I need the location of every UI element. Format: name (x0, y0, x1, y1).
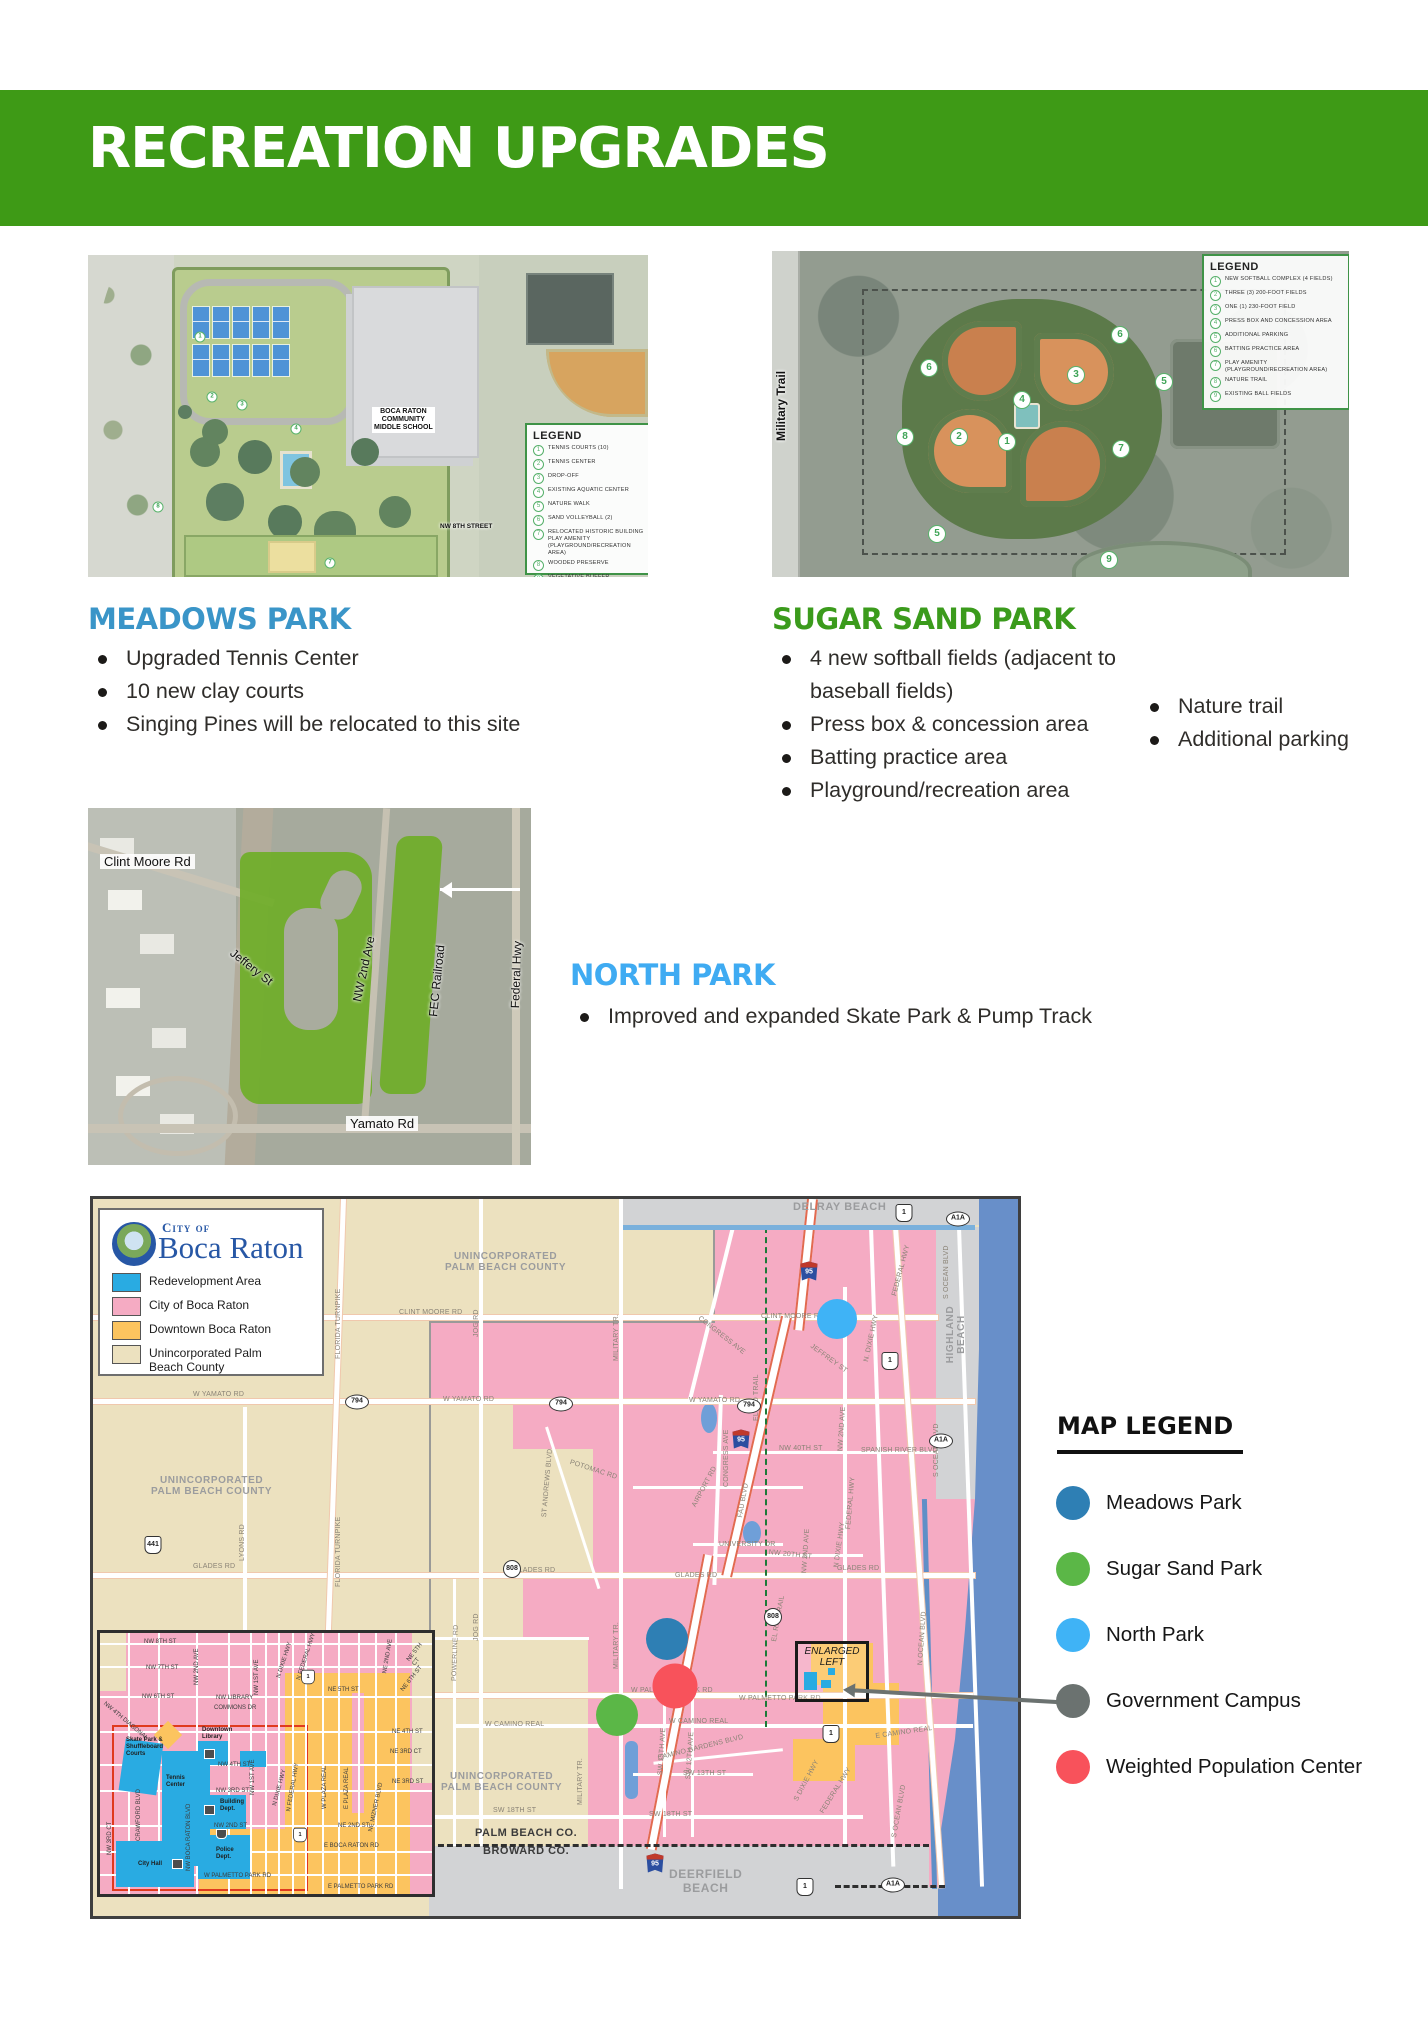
bullet-item: 4 new softball fields (adjacent to baseb… (772, 642, 1162, 708)
map-legend-label: Sugar Sand Park (1106, 1557, 1262, 1581)
map-legend-item: Sugar Sand Park (1056, 1552, 1262, 1586)
tennis-court (232, 306, 250, 339)
road (619, 1199, 623, 1889)
legend-item-label: BATTING PRACTICE AREA (1225, 346, 1299, 353)
legend-item-label: EXISTING BALL FIELDS (1225, 391, 1291, 398)
bullet-item: Improved and expanded Skate Park & Pump … (570, 1000, 1270, 1033)
meadows-image-legend: LEGEND 1TENNIS COURTS (10)2TENNIS CENTER… (525, 423, 648, 575)
north-park-marker (817, 1299, 857, 1339)
north-heading: NORTH PARK (570, 958, 775, 992)
inset-label: NW 4TH ST (218, 1762, 250, 1769)
north-park-aerial: Clint Moore RdJeffery StNW 2nd AveFEC Ra… (88, 808, 531, 1165)
inset-label: Tennis Center (166, 1775, 185, 1789)
route-shield: 794 (345, 1395, 369, 1410)
bullet-item: 10 new clay courts (88, 675, 648, 708)
legend-item-number: 3 (533, 473, 544, 484)
map-road-label: JOG RD (473, 1309, 480, 1337)
inset-label: NW 6TH ST (142, 1694, 174, 1701)
legend-item: 5ADDITIONAL PARKING (1210, 332, 1342, 343)
legend-item-label: TENNIS COURTS (10) (548, 445, 609, 452)
numbered-badge: 1 (195, 332, 206, 343)
legend-item-number: 7 (1210, 360, 1221, 371)
legend-item-label: PLAY AMENITY (PLAYGROUND/RECREATION AREA… (1225, 360, 1342, 374)
map-road-label: GLADES RD (837, 1565, 879, 1572)
military-trail-label: Military Trail (774, 371, 788, 441)
route-shield: 441 (145, 1536, 162, 1554)
legend-item-number: 6 (533, 515, 544, 526)
numbered-badge: 8 (153, 502, 164, 513)
map-road-label: CONGRESS AVE (723, 1429, 730, 1487)
sugar-sand-park-legend-dot (1056, 1552, 1090, 1586)
numbered-badge: 8 (896, 428, 914, 446)
map-area-label: UNINCORPORATED PALM BEACH COUNTY (151, 1475, 272, 1497)
road (479, 1199, 483, 1846)
map-road-label: W YAMATO RD (443, 1396, 494, 1403)
bullet-item: Singing Pines will be relocated to this … (88, 708, 648, 741)
legend-item-label: THREE (3) 200-FOOT FIELDS (1225, 290, 1307, 297)
route-shield: A1A (929, 1434, 953, 1449)
inset-label: NW BOCA RATON BLVD (186, 1804, 193, 1871)
softball-field-nw (942, 321, 1022, 401)
inset-label: E PALMETTO PARK RD (328, 1884, 393, 1891)
legend-item: 6BATTING PRACTICE AREA (1210, 346, 1342, 357)
numbered-badge: 2 (950, 428, 968, 446)
map-road-label: S OCEAN BLVD (933, 1423, 940, 1477)
city-hall-icon (172, 1859, 183, 1869)
weighted-population-marker (653, 1664, 698, 1709)
map-area-label: PALM BEACH CO. (475, 1827, 577, 1839)
route-shield: 95 (733, 1430, 750, 1449)
legend-item-label: SAND VOLLEYBALL (2) (548, 515, 613, 522)
legend-item: 8WOODED PRESERVE (533, 560, 648, 571)
legend-item-number: 1 (533, 445, 544, 456)
legend-item-number: 9 (1210, 391, 1221, 402)
map-area-label: BROWARD CO. (483, 1845, 569, 1857)
weighted-population-center-legend-dot (1056, 1750, 1090, 1784)
map-road-label: LYONS RD (239, 1524, 246, 1561)
map-road-label: SW 13TH ST (683, 1770, 726, 1777)
route-shield: 95 (801, 1262, 818, 1281)
map-area-label: HIGHLAND BEACH (945, 1298, 967, 1371)
tree-canopy (178, 405, 192, 419)
route-shield: 1 (896, 1204, 913, 1222)
legend-item-number: 2 (533, 459, 544, 470)
enlarged-left-label: ENLARGED LEFT (798, 1646, 866, 1668)
route-shield: 808 (764, 1608, 782, 1626)
north-park-legend-dot (1056, 1618, 1090, 1652)
tennis-court (192, 344, 210, 377)
aerial-road-label: Yamato Rd (346, 1116, 418, 1131)
tennis-court (212, 306, 230, 339)
route-shield: 1 (301, 1670, 315, 1684)
header-band: RECREATION UPGRADES (0, 90, 1428, 226)
numbered-badge: 6 (920, 359, 938, 377)
sugar-image-legend: LEGEND 1NEW SOFTBALL COMPLEX (4 FIELDS)2… (1202, 254, 1349, 410)
page-title: RECREATION UPGRADES (88, 116, 829, 181)
sugar-bullets-left: 4 new softball fields (adjacent to baseb… (772, 642, 1162, 807)
numbered-badge: 7 (1112, 440, 1130, 458)
legend-title: LEGEND (1210, 261, 1342, 273)
legend-item-number: 3 (1210, 304, 1221, 315)
map-road-label: GLADES RD (675, 1572, 717, 1579)
city-seal-icon (112, 1222, 156, 1266)
map-road-label: W YAMATO RD (689, 1397, 740, 1404)
legend-item-number: 8 (533, 560, 544, 571)
north-bullets: Improved and expanded Skate Park & Pump … (570, 1000, 1270, 1033)
route-shield: 808 (503, 1560, 521, 1578)
inset-label: City Hall (138, 1861, 162, 1868)
legend-item: 5NATURE WALK (533, 501, 648, 512)
bullet-item: Playground/recreation area (772, 774, 1162, 807)
map-legend-label: Weighted Population Center (1106, 1755, 1362, 1779)
legend-item-number: 2 (1210, 290, 1221, 301)
road (623, 1225, 975, 1230)
inset-road (100, 1825, 432, 1827)
landuse-label: City of Boca Raton (149, 1297, 249, 1312)
inset-label: E BOCA RATON RD (324, 1843, 379, 1850)
white-arrow (440, 888, 520, 891)
enlarged-left-box: ENLARGED LEFT (795, 1641, 869, 1702)
map-area-label: DEERFIELD BEACH (669, 1867, 742, 1895)
bullet-item: Batting practice area (772, 741, 1162, 774)
route-shield: A1A (946, 1212, 970, 1227)
inset-label: E PLAZA REAL (344, 1767, 351, 1809)
map-road-label: EL RIO TRAIL (753, 1374, 760, 1421)
map-legend-item: North Park (1056, 1618, 1204, 1652)
map-road-label: SPANISH RIVER BLVD (861, 1447, 938, 1454)
map-road-label: MILITARY TR. (577, 1758, 584, 1805)
route-shield: 95 (647, 1854, 664, 1873)
legend-item: 4PRESS BOX AND CONCESSION AREA (1210, 318, 1342, 329)
route-shield: 794 (737, 1399, 761, 1414)
inset-label: COMMONS DR (214, 1705, 256, 1712)
legend-item-number: 4 (1210, 318, 1221, 329)
legend-item-number: 5 (1210, 332, 1221, 343)
softball-field-sw (928, 409, 1012, 493)
meadows-heading: MEADOWS PARK (88, 602, 351, 636)
residential-cutout (284, 908, 338, 1030)
tennis-court (272, 344, 290, 377)
landuse-legend-item: Unincorporated Palm Beach County (112, 1345, 322, 1374)
legend-item-label: VEGETATIVE BUFFER (548, 574, 610, 577)
legend-item-label: NEW SOFTBALL COMPLEX (4 FIELDS) (1225, 276, 1333, 283)
legend-item: 2THREE (3) 200-FOOT FIELDS (1210, 290, 1342, 301)
sugar-bullets-right: Nature trailAdditional parking (1140, 690, 1360, 756)
sugar-sand-marker (596, 1694, 638, 1736)
school-courts (526, 273, 614, 345)
numbered-badge: 1 (998, 433, 1016, 451)
road (765, 1227, 769, 1727)
route-shield: A1A (881, 1878, 905, 1893)
school-label: BOCA RATON COMMUNITY MIDDLE SCHOOL (372, 407, 435, 433)
map-area-label: DELRAY BEACH (793, 1201, 886, 1213)
numbered-badge: 7 (325, 558, 336, 569)
tennis-court (272, 306, 290, 339)
map-road-label: SW 18TH ST (649, 1811, 692, 1818)
map-legend-underline (1057, 1450, 1243, 1454)
legend-item-label: TENNIS CENTER (548, 459, 596, 466)
inset-road (100, 1731, 432, 1733)
map-road-label: SW 18TH ST (493, 1807, 536, 1814)
legend-item-label: RELOCATED HISTORIC BUILDING PLAY AMENITY… (548, 529, 648, 557)
legend-item: 8NATURE TRAIL (1210, 377, 1342, 388)
tennis-court (212, 344, 230, 377)
inset-label: W PALMETTO PARK RD (204, 1873, 271, 1880)
legend-item-label: PRESS BOX AND CONCESSION AREA (1225, 318, 1332, 325)
legend-item: 1TENNIS COURTS (10) (533, 445, 648, 456)
inset-label: CRAWFORD BLVD (136, 1789, 143, 1841)
legend-item-label: EXISTING AQUATIC CENTER (548, 487, 629, 494)
legend-item-number: 6 (1210, 346, 1221, 357)
numbered-badge: 6 (1111, 326, 1129, 344)
aquatic-center-pool (280, 451, 312, 489)
inset-label: NE 5TH ST (328, 1687, 359, 1694)
map-road-label: W YAMATO RD (193, 1391, 244, 1398)
map-road-label: MILITARY TR. (613, 1314, 620, 1361)
legend-item: 2TENNIS CENTER (533, 459, 648, 470)
landuse-swatch (112, 1297, 141, 1316)
page: RECREATION UPGRADES BOCA RATON COMMUNITY… (0, 0, 1428, 2028)
meadows-bullets: Upgraded Tennis Center10 new clay courts… (88, 642, 648, 741)
legend-item-number: 1 (1210, 276, 1221, 287)
legend-item: 7PLAY AMENITY (PLAYGROUND/RECREATION ARE… (1210, 360, 1342, 374)
logo-city-name: Boca Raton (158, 1230, 304, 1266)
route-shield: 794 (549, 1397, 573, 1412)
route-shield: 1 (293, 1828, 307, 1842)
landuse-legend-item: Redevelopment Area (112, 1273, 322, 1292)
legend-item-label: NATURE WALK (548, 501, 590, 508)
library-icon (204, 1749, 215, 1759)
landuse-label: Redevelopment Area (149, 1273, 261, 1288)
map-road-label: W CAMINO REAL (669, 1718, 728, 1725)
map-road-label: JOG RD (473, 1613, 480, 1641)
legend-item-label: NATURE TRAIL (1225, 377, 1267, 384)
numbered-badge: 2 (207, 392, 218, 403)
legend-item: 1NEW SOFTBALL COMPLEX (4 FIELDS) (1210, 276, 1342, 287)
route-shield: 1 (882, 1352, 899, 1370)
inset-label: NE 4TH ST (392, 1729, 423, 1736)
interchange-loop (118, 1076, 238, 1156)
sugar-sand-aerial: Military Trail LEGEND 1NEW SOFTBALL COMP… (772, 251, 1349, 577)
yamato-road (88, 1124, 531, 1133)
map-road-label: MILITARY TR. (613, 1622, 620, 1669)
legend-title: LEGEND (533, 430, 648, 442)
inset-label: NW LIBRARY (216, 1695, 253, 1702)
aerial-road-label: Clint Moore Rd (100, 854, 195, 869)
bullet-item: Upgraded Tennis Center (88, 642, 648, 675)
legend-item-number: 9 (533, 574, 544, 577)
map-area-label: UNINCORPORATED PALM BEACH COUNTY (445, 1251, 566, 1273)
bullet-item: Nature trail (1140, 690, 1360, 723)
landuse-label: Unincorporated Palm Beach County (149, 1345, 262, 1374)
map-logo-legend: City of Boca Raton Redevelopment AreaCit… (98, 1208, 324, 1376)
landuse-legend-item: Downtown Boca Raton (112, 1321, 322, 1340)
inset-label: NW 1ST AVE (254, 1660, 261, 1695)
legend-item: 9VEGETATIVE BUFFER (533, 574, 648, 577)
sugar-heading: SUGAR SAND PARK (772, 602, 1075, 636)
street-label: NW 8TH STREET (440, 523, 492, 530)
legend-item-label: DROP-OFF (548, 473, 579, 480)
legend-item: 7RELOCATED HISTORIC BUILDING PLAY AMENIT… (533, 529, 648, 557)
bullet-item: Press box & concession area (772, 708, 1162, 741)
road (453, 1579, 456, 1846)
map-legend-title: MAP LEGEND (1057, 1412, 1233, 1440)
aerial-road-label: Federal Hwy (508, 941, 524, 1009)
road (433, 1815, 863, 1819)
numbered-badge: 5 (1155, 373, 1173, 391)
landuse-swatch (112, 1321, 141, 1340)
landuse-swatch (112, 1273, 141, 1292)
map-road-label: UNIVERSITY DR (719, 1541, 776, 1548)
inset-label: Skate Park & Shuffleboard Courts (126, 1737, 163, 1758)
tennis-court (232, 344, 250, 377)
map-road-label: W CAMINO REAL (485, 1721, 544, 1728)
meadows-park-legend-dot (1056, 1486, 1090, 1520)
numbered-badge: 4 (291, 424, 302, 435)
map-legend-item: Weighted Population Center (1056, 1750, 1362, 1784)
numbered-badge: 4 (1013, 391, 1031, 409)
map-road-label: FLORIDA TURNPIKE (335, 1289, 342, 1359)
legend-item-label: ONE (1) 230-FOOT FIELD (1225, 304, 1296, 311)
numbered-badge: 3 (237, 400, 248, 411)
inset-label: Downtown Library (202, 1727, 232, 1741)
tennis-court (252, 306, 270, 339)
map-legend-item: Government Campus (1056, 1684, 1301, 1718)
legend-item-number: 4 (533, 487, 544, 498)
legend-item: 9EXISTING BALL FIELDS (1210, 391, 1342, 402)
route-shield: 1 (823, 1725, 840, 1743)
legend-item: 6SAND VOLLEYBALL (2) (533, 515, 648, 526)
inset-label: NW 1ST AVE (250, 1760, 257, 1795)
map-road-label: CLINT MOORE RD (399, 1309, 462, 1316)
inset-label: Police Dept. (216, 1847, 234, 1861)
tennis-court (252, 344, 270, 377)
map-legend-label: North Park (1106, 1623, 1204, 1647)
inset-label: NW 8TH ST (144, 1639, 176, 1646)
map-road-label: FLORIDA TURNPIKE (335, 1517, 342, 1587)
legend-item: 4EXISTING AQUATIC CENTER (533, 487, 648, 498)
route-shield: 1 (797, 1878, 814, 1896)
map-road-label: S OCEAN BLVD (943, 1245, 950, 1299)
softball-field-se (1020, 421, 1106, 507)
legend-item-number: 8 (1210, 377, 1221, 388)
inset-label: NE 3RD ST (392, 1779, 423, 1786)
map-legend-label: Meadows Park (1106, 1491, 1242, 1515)
inset-label: NE 2ND ST (338, 1823, 369, 1830)
inset-label: NW 3RD ST (216, 1788, 249, 1795)
boca-raton-map: DELRAY BEACHUNINCORPORATED PALM BEACH CO… (90, 1196, 1021, 1919)
legend-item-number: 7 (533, 529, 544, 540)
landuse-swatch (112, 1345, 141, 1364)
legend-item-label: WOODED PRESERVE (548, 560, 609, 567)
inset-label: W PLAZA REAL (322, 1766, 329, 1809)
meadows-park-aerial: BOCA RATON COMMUNITY MIDDLE SCHOOL NW 8T… (88, 255, 648, 577)
landuse-label: Downtown Boca Raton (149, 1321, 271, 1336)
inset-label: NW 7TH ST (146, 1665, 178, 1672)
map-road-label: GLADES RD (193, 1563, 235, 1570)
sand-courts (268, 541, 316, 573)
inset-label: Building Dept. (220, 1799, 244, 1813)
inset-label: NE 3RD CT (390, 1749, 422, 1756)
legend-item-label: ADDITIONAL PARKING (1225, 332, 1288, 339)
map-road-label: CLINT MOORE RD (761, 1313, 824, 1320)
downtown-inset-map: NW 8TH STNW 7TH STNW 6TH STNW 4TH DIAGON… (97, 1630, 435, 1897)
inset-label: NW 2ND ST (214, 1823, 247, 1830)
bullet-item: Additional parking (1140, 723, 1360, 756)
legend-item-number: 5 (533, 501, 544, 512)
map-area-label: UNINCORPORATED PALM BEACH COUNTY (441, 1771, 562, 1793)
legend-item: 3ONE (1) 230-FOOT FIELD (1210, 304, 1342, 315)
inset-label: NW 3RD CT (107, 1822, 114, 1855)
police-dept-icon (216, 1829, 227, 1839)
map-legend-item: Meadows Park (1056, 1486, 1242, 1520)
meadows-park-marker (646, 1618, 688, 1660)
numbered-badge: 3 (1067, 366, 1085, 384)
numbered-badge: 5 (928, 525, 946, 543)
numbered-badge: 9 (1100, 551, 1118, 569)
landuse-legend-item: City of Boca Raton (112, 1297, 322, 1316)
map-legend-label: Government Campus (1106, 1689, 1301, 1713)
building-dept-icon (204, 1805, 215, 1815)
legend-item: 3DROP-OFF (533, 473, 648, 484)
inset-label: NW 2ND AVE (194, 1648, 201, 1685)
map-road-label: NW 40TH ST (779, 1445, 823, 1452)
